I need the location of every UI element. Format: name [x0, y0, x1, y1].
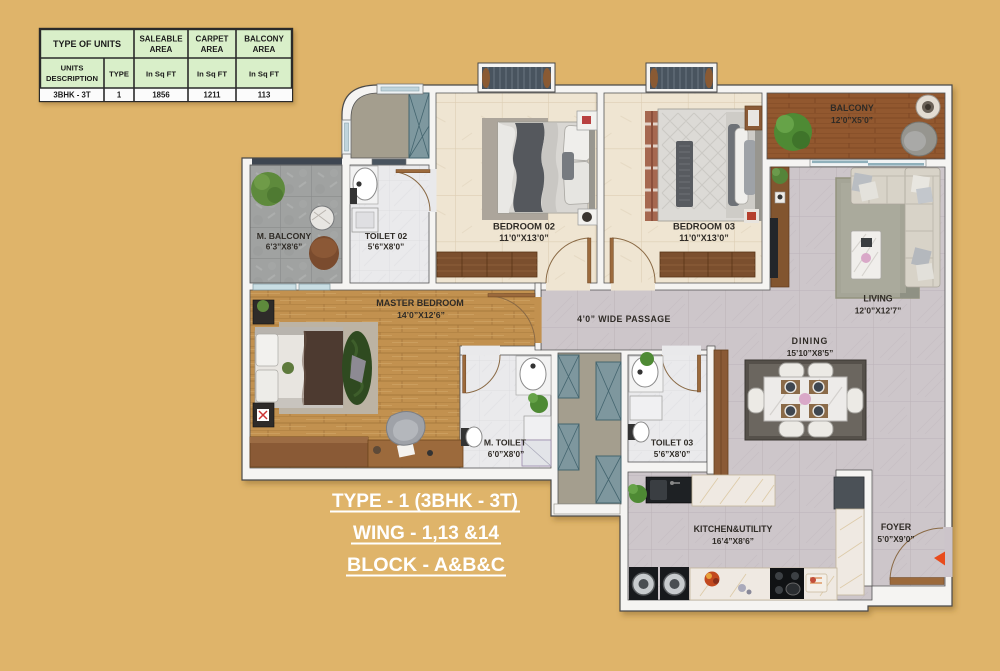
svg-text:In Sq FT: In Sq FT [197, 70, 227, 79]
svg-text:3BHK - 3T: 3BHK - 3T [53, 91, 90, 100]
svg-text:TYPE OF UNITS: TYPE OF UNITS [53, 39, 121, 49]
svg-text:4’0” WIDE PASSAGE: 4’0” WIDE PASSAGE [577, 314, 671, 324]
svg-text:14’0”X12’6”: 14’0”X12’6” [397, 310, 445, 320]
svg-text:6’3”X8’6”: 6’3”X8’6” [266, 243, 302, 252]
svg-text:TOILET 02: TOILET 02 [365, 231, 408, 241]
svg-text:5’6”X8’0”: 5’6”X8’0” [368, 243, 404, 252]
svg-text:1211: 1211 [204, 91, 222, 100]
svg-text:M. BALCONY: M. BALCONY [257, 231, 312, 241]
svg-text:BALCONY: BALCONY [830, 103, 874, 113]
svg-text:12’0”X12’7”: 12’0”X12’7” [855, 306, 902, 316]
svg-text:DESCRIPTION: DESCRIPTION [46, 74, 98, 83]
svg-text:11’0”X13’0”: 11’0”X13’0” [679, 233, 729, 243]
svg-text:In Sq FT: In Sq FT [249, 70, 279, 79]
svg-text:AREA: AREA [150, 45, 173, 54]
svg-text:KITCHEN&UTILITY: KITCHEN&UTILITY [694, 524, 773, 534]
svg-text:6’0”X8’0”: 6’0”X8’0” [488, 450, 524, 459]
svg-text:M. TOILET: M. TOILET [484, 438, 527, 448]
svg-text:11’0”X13’0”: 11’0”X13’0” [499, 233, 549, 243]
svg-text:BEDROOM 03: BEDROOM 03 [673, 221, 735, 232]
svg-text:UNITS: UNITS [61, 64, 84, 73]
svg-text:BEDROOM 02: BEDROOM 02 [493, 221, 555, 232]
svg-text:16’4”X8’6”: 16’4”X8’6” [712, 536, 754, 546]
svg-text:FOYER: FOYER [881, 522, 912, 532]
svg-text:TYPE - 1 (3BHK - 3T): TYPE - 1 (3BHK - 3T) [332, 490, 518, 512]
svg-text:1856: 1856 [152, 91, 170, 100]
svg-text:15’10”X8’5”: 15’10”X8’5” [787, 348, 834, 358]
svg-text:5’0”X9’0”: 5’0”X9’0” [877, 534, 914, 544]
svg-text:MASTER BEDROOM: MASTER BEDROOM [376, 298, 464, 308]
svg-text:AREA: AREA [253, 45, 276, 54]
svg-text:WING - 1,13 &14: WING - 1,13 &14 [353, 522, 499, 544]
svg-text:DINING: DINING [792, 336, 829, 346]
svg-text:BALCONY: BALCONY [244, 35, 284, 44]
svg-text:BLOCK - A&B&C: BLOCK - A&B&C [347, 554, 505, 576]
svg-text:5’6”X8’0”: 5’6”X8’0” [654, 450, 690, 459]
svg-text:12’0”X5’0”: 12’0”X5’0” [831, 115, 873, 125]
svg-text:113: 113 [258, 91, 271, 100]
svg-text:AREA: AREA [201, 45, 224, 54]
svg-text:1: 1 [117, 91, 122, 100]
svg-text:LIVING: LIVING [863, 294, 892, 304]
svg-text:TOILET 03: TOILET 03 [651, 438, 694, 448]
svg-text:TYPE: TYPE [109, 70, 129, 79]
svg-text:SALEABLE: SALEABLE [139, 35, 183, 44]
svg-text:CARPET: CARPET [196, 35, 229, 44]
svg-text:In Sq FT: In Sq FT [146, 70, 176, 79]
